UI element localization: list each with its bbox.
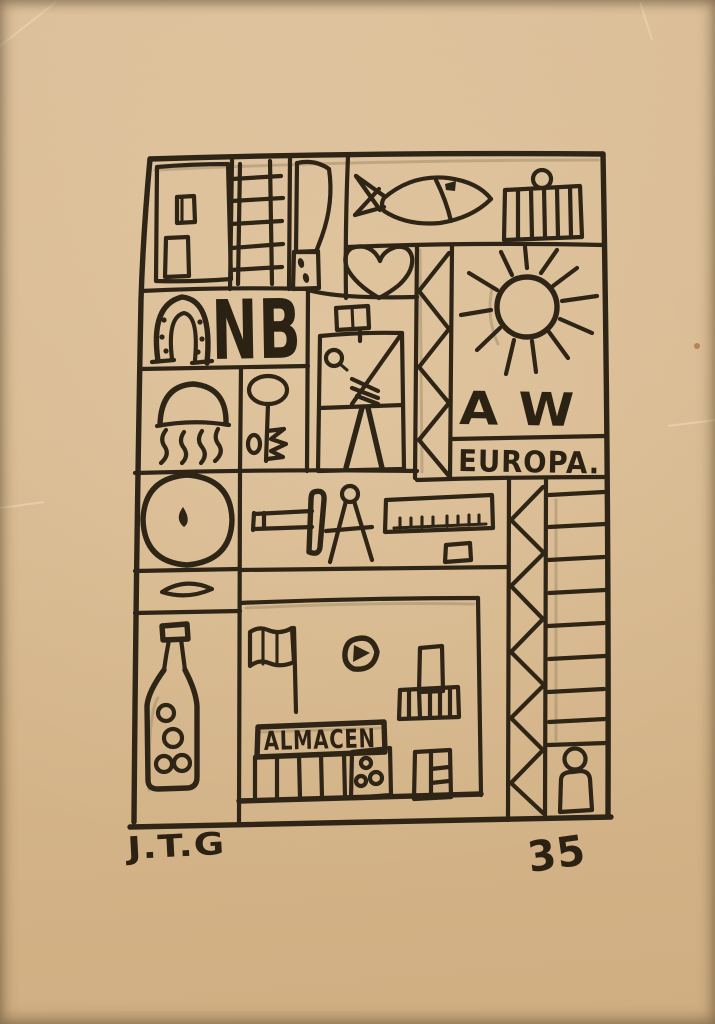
door-icon [156, 164, 231, 281]
moon-icon [345, 638, 377, 669]
panel-door-icon [414, 750, 451, 799]
horseshoe-icon [152, 297, 212, 363]
colonnade [255, 754, 345, 798]
sun-icon [461, 247, 597, 374]
ladder-icon [231, 161, 283, 284]
artist-signature: J.T.G [124, 826, 226, 867]
hammer-icon [253, 491, 324, 553]
jellyfish-icon [157, 384, 229, 463]
artwork-photo: NB [0, 0, 715, 1024]
fish-icon [355, 176, 491, 224]
knife-icon [293, 162, 330, 289]
zigzag-column-icon [511, 487, 544, 813]
drawing: NB [0, 0, 715, 1024]
building: ALMACEN [239, 598, 481, 801]
constructor-figure [318, 306, 404, 471]
europa-inscription: EUROPA. [458, 444, 601, 481]
grill-icon [504, 170, 582, 240]
heart-icon [345, 246, 412, 298]
lens-icon [162, 584, 212, 596]
basket-icon [399, 646, 459, 719]
ruler-icon [385, 495, 493, 562]
wheel-icon [143, 475, 232, 565]
nb-inscription: NB [211, 282, 303, 379]
truss-zigzag-icon [419, 253, 449, 476]
building-flag-icon [250, 628, 296, 712]
paper-spot [694, 343, 700, 349]
aw-inscription: A W [459, 381, 576, 437]
number-inscription: 35 [525, 825, 589, 882]
key-icon [248, 376, 287, 461]
compass-icon [326, 486, 372, 562]
person-icon [560, 749, 592, 813]
